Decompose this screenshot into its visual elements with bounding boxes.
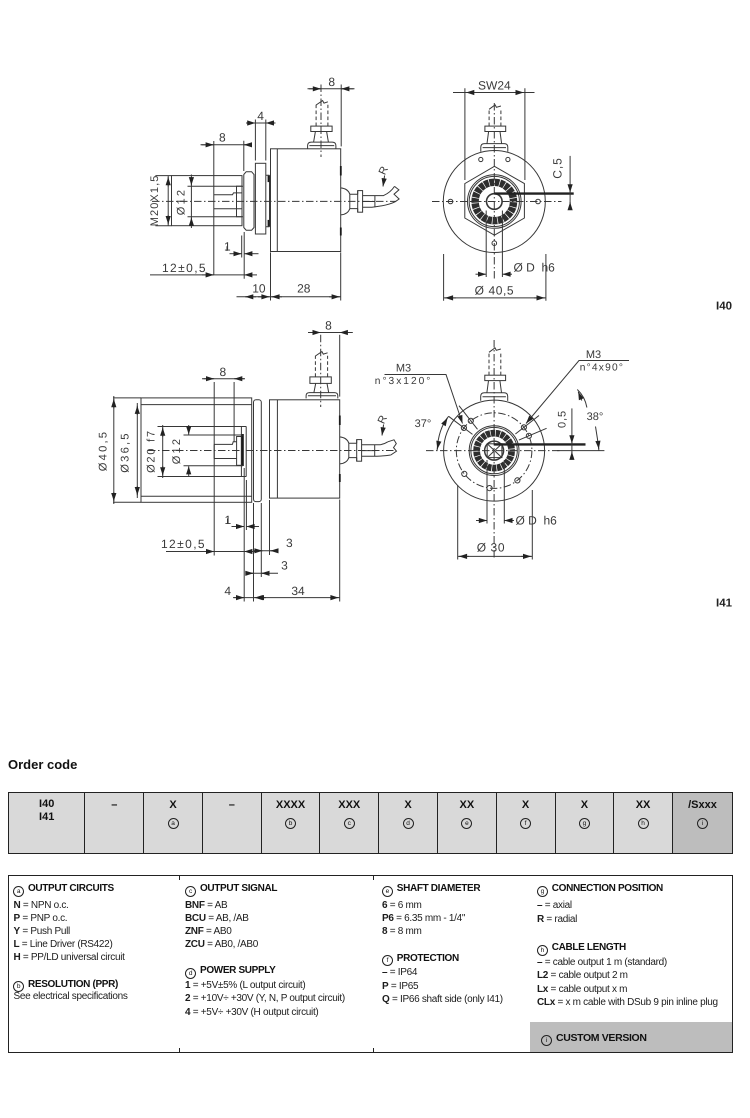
svg-text:R: R: [377, 165, 391, 177]
svg-text:8: 8: [325, 318, 332, 332]
svg-text:12±0,5: 12±0,5: [161, 537, 206, 551]
svg-text:M3: M3: [586, 349, 601, 361]
svg-text:4: 4: [257, 109, 264, 123]
svg-text:M3: M3: [396, 363, 411, 375]
svg-text:Ø 30: Ø 30: [477, 541, 505, 555]
svg-text:Ø12: Ø12: [176, 188, 188, 215]
svg-text:38°: 38°: [587, 411, 604, 423]
svg-text:Ø36,5: Ø36,5: [120, 431, 132, 472]
svg-text:28: 28: [297, 281, 311, 295]
svg-text:10: 10: [252, 281, 266, 295]
svg-text:1: 1: [224, 240, 231, 254]
svg-text:1: 1: [224, 513, 231, 527]
svg-text:I40: I40: [716, 301, 732, 313]
svg-text:8: 8: [328, 75, 335, 89]
svg-text:Ø20 f7: Ø20 f7: [146, 429, 158, 473]
svg-text:Ø D h6: Ø D h6: [516, 514, 558, 528]
svg-text:37°: 37°: [415, 418, 432, 430]
svg-text:12±0,5: 12±0,5: [162, 261, 207, 275]
svg-text:3: 3: [281, 559, 288, 573]
svg-text:Ø D h6: Ø D h6: [514, 261, 556, 275]
svg-text:Ø40,5: Ø40,5: [98, 430, 110, 471]
svg-text:0,5: 0,5: [557, 410, 569, 428]
svg-text:R: R: [376, 414, 390, 426]
svg-text:3: 3: [286, 536, 293, 550]
svg-text:SW24: SW24: [478, 78, 511, 92]
svg-text:I41: I41: [716, 598, 733, 610]
svg-text:n°4x90°: n°4x90°: [580, 363, 624, 374]
svg-text:4: 4: [224, 584, 231, 598]
svg-text:C,5: C,5: [551, 157, 565, 178]
svg-text:Ø12: Ø12: [171, 437, 183, 464]
svg-text:Ø 40,5: Ø 40,5: [475, 284, 515, 298]
svg-text:8: 8: [219, 365, 226, 379]
svg-text:n°3x120°: n°3x120°: [375, 376, 433, 387]
svg-text:8: 8: [219, 130, 226, 144]
svg-text:34: 34: [291, 584, 305, 598]
svg-text:M20X1,5: M20X1,5: [149, 175, 161, 227]
